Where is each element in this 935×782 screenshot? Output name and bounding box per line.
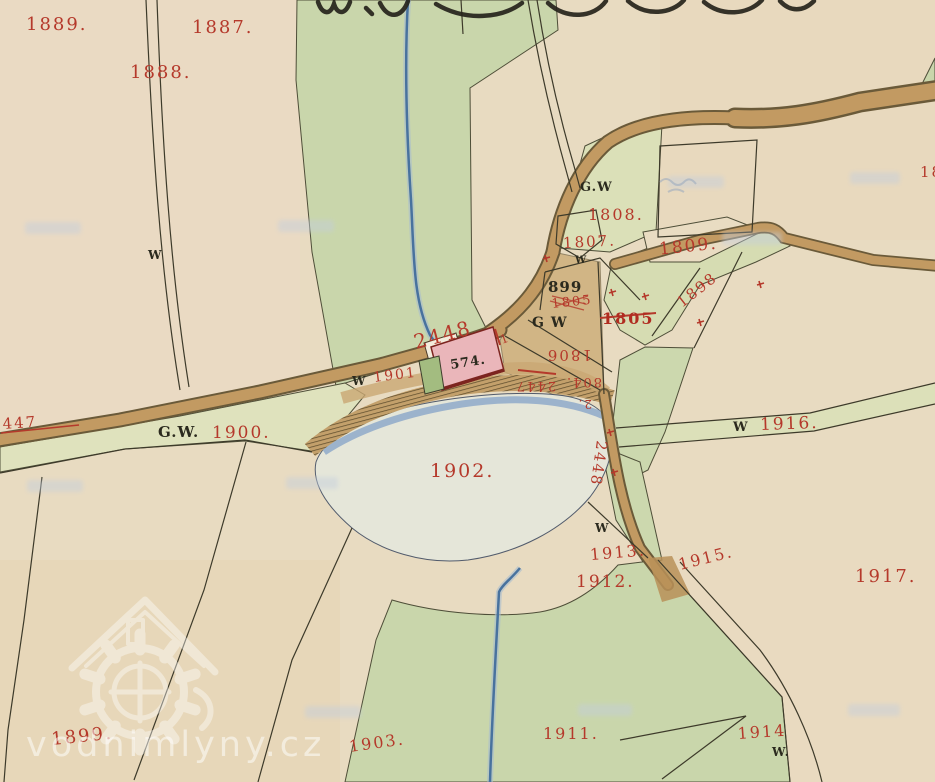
label-w-south: W xyxy=(594,521,609,535)
parcel-label-1887: 1887. xyxy=(192,17,254,38)
label-gw-1900: G.W. xyxy=(158,423,199,441)
label-w-1807: W xyxy=(574,255,587,266)
parcel-label-1914: 1914 xyxy=(737,721,787,743)
parcel-label-1888: 1888. xyxy=(130,62,192,83)
parcel-label-804: 804. xyxy=(565,374,602,389)
label-gw-mill-yard: G W xyxy=(532,315,568,331)
parcel-label-899: 899 xyxy=(548,278,582,296)
label-w-1916: W xyxy=(732,420,749,435)
parcel-label-447: 447 xyxy=(2,413,38,433)
parcel-label-1916: 1916. xyxy=(760,413,819,435)
parcel-label-1902: 1902. xyxy=(430,460,494,482)
parcel-label-2447-struck: 2447 xyxy=(515,378,556,393)
label-w-mill: W xyxy=(351,374,366,388)
parcel-label-1911: 1911. xyxy=(543,724,599,743)
parcel-label-1805-new: 1805 xyxy=(602,309,655,328)
parcel-label-1807: 1807. xyxy=(563,231,617,252)
parcel-label-2: 2. xyxy=(577,397,592,411)
parcel-label-1889: 1889. xyxy=(26,14,88,35)
parcel-label-1808: 1808. xyxy=(588,205,644,224)
cadastral-map: 1889. 1887. 1888. 1808. 1807. 1809. 1898… xyxy=(0,0,935,782)
parcel-label-1806: 1806 xyxy=(546,346,592,364)
label-gw-upper: G.W xyxy=(580,180,613,195)
parcel-label-1917: 1917. xyxy=(855,566,917,587)
parcel-label-edge-partial: 18 xyxy=(920,163,935,181)
map-canvas: 1889. 1887. 1888. 1808. 1807. 1809. 1898… xyxy=(0,0,935,782)
label-w-1914: W. xyxy=(771,745,790,759)
watermark-site-text: vodnimlyny.cz xyxy=(26,725,325,765)
parcel-label-1900: 1900. xyxy=(212,423,271,443)
parcel-label-1912: 1912. xyxy=(576,572,635,592)
label-w-path: W xyxy=(147,248,162,262)
